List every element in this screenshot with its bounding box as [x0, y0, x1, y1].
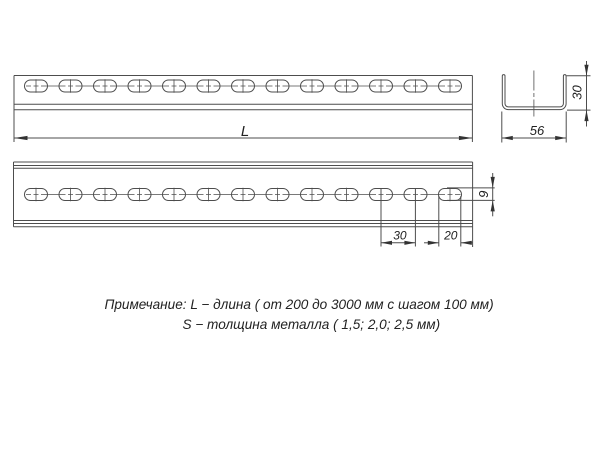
svg-text:56: 56 — [530, 123, 545, 138]
svg-text:S − толщина металла ( 1,5; 2,0: S − толщина металла ( 1,5; 2,0; 2,5 мм) — [183, 317, 441, 332]
svg-text:L: L — [241, 123, 249, 140]
svg-text:30: 30 — [570, 85, 585, 100]
svg-text:20: 20 — [443, 228, 458, 242]
svg-text:30: 30 — [393, 228, 407, 242]
svg-text:9: 9 — [476, 191, 491, 198]
svg-text:Примечание: L − длина ( от 200: Примечание: L − длина ( от 200 до 3000 м… — [105, 297, 494, 312]
